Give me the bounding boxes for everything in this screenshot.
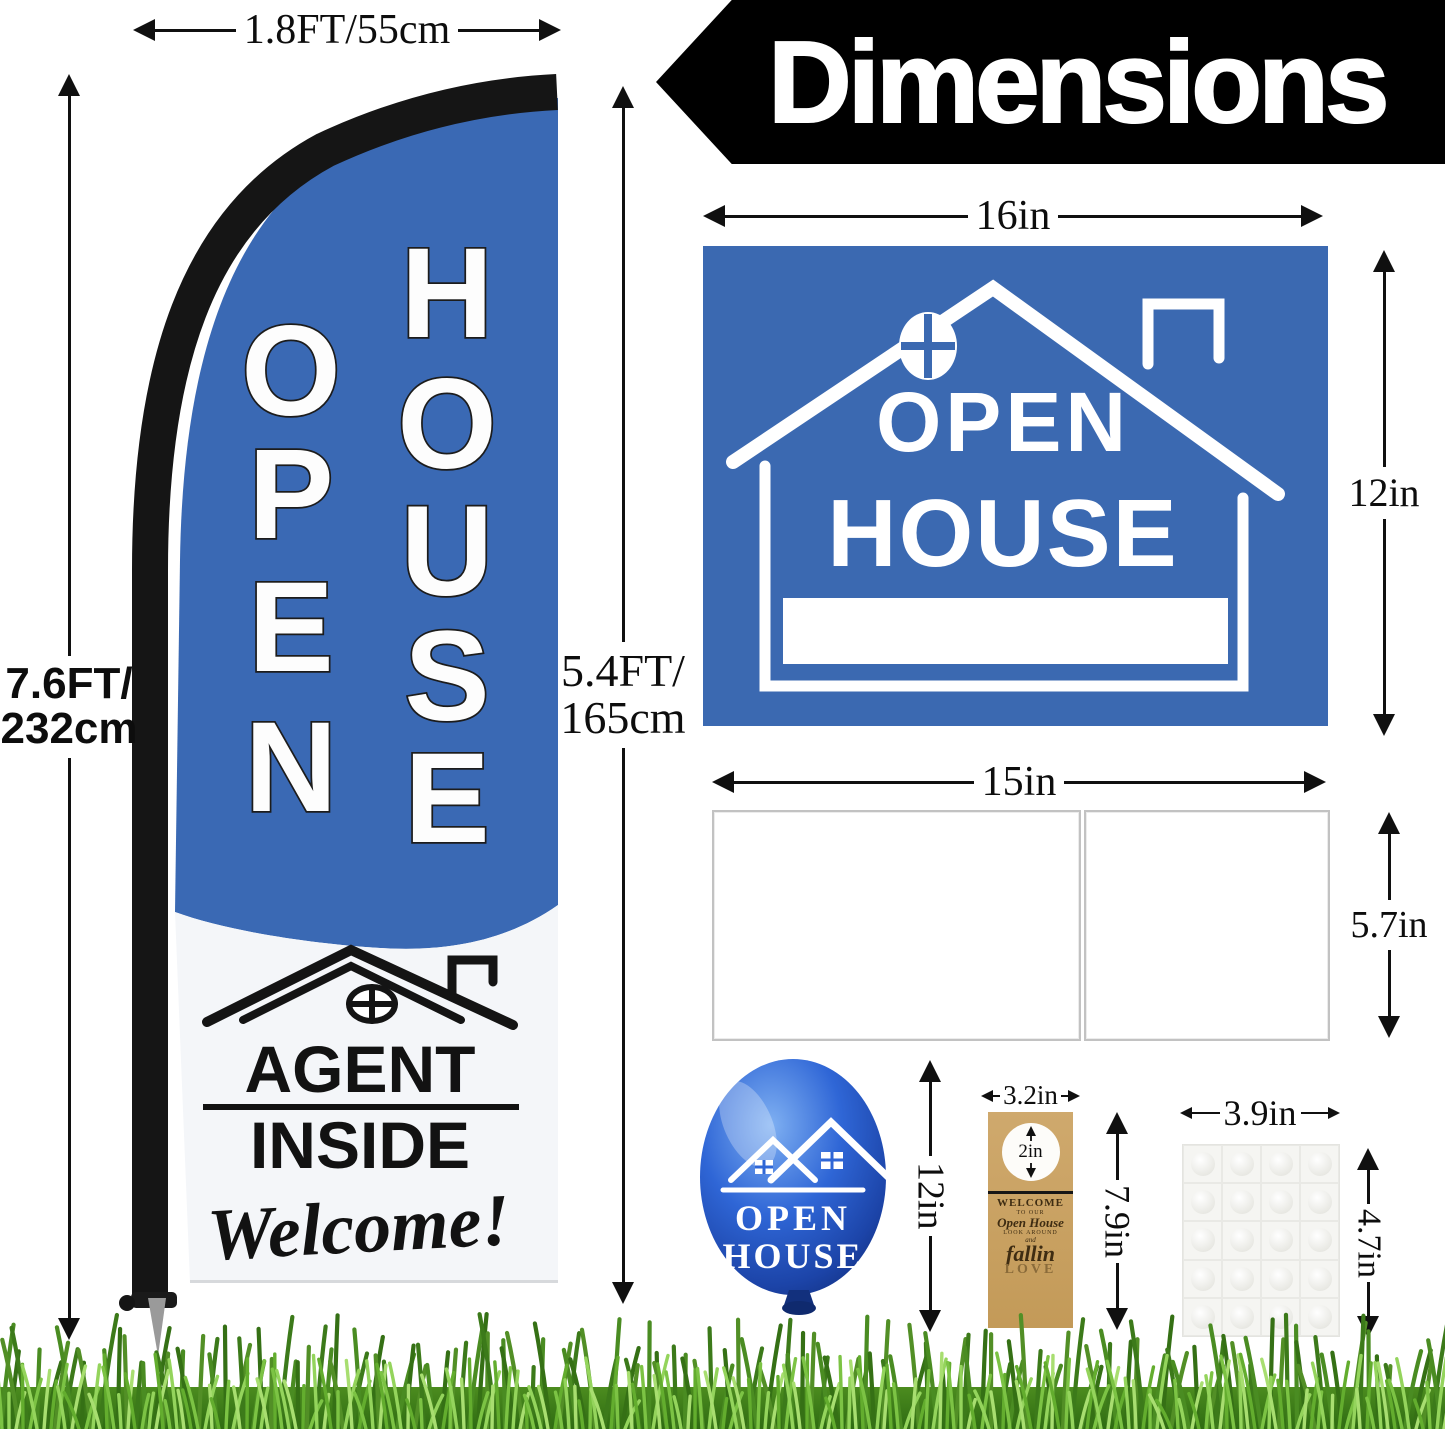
flag-width-label: 1.8FT/55cm xyxy=(236,9,459,52)
glue-dot xyxy=(1269,1228,1293,1252)
glue-dot-cell xyxy=(1261,1221,1300,1259)
stake-height-arrow: 5.7in xyxy=(1344,812,1434,1038)
glue-dot-cell xyxy=(1183,1221,1222,1259)
glue-dot xyxy=(1230,1228,1254,1252)
hanger-divider xyxy=(988,1191,1073,1194)
glue-dot xyxy=(1191,1190,1215,1214)
glue-dot xyxy=(1308,1228,1332,1252)
feather-flag: O P E N H O U S E AGENT INSIDE Welcome! xyxy=(115,70,570,1360)
hanger-hole: 2in xyxy=(1002,1123,1060,1181)
h-stake-frame-left xyxy=(712,810,1081,1041)
sign-width-arrow: 16in xyxy=(703,196,1323,236)
flag-letter: U xyxy=(401,480,493,623)
stake-width-arrow: 15in xyxy=(712,762,1326,802)
stake-height-label: 5.7in xyxy=(1350,900,1427,951)
arrowhead-up xyxy=(612,86,634,108)
flag-letter: P xyxy=(248,423,333,566)
balloon-open-text: OPEN xyxy=(735,1198,851,1238)
balloon-height-label: 12in xyxy=(911,1156,950,1236)
glue-dot-cell xyxy=(1261,1145,1300,1183)
arrowhead-right xyxy=(539,19,561,41)
glue-dot-cell xyxy=(1222,1145,1261,1183)
sign-blank-strip xyxy=(783,598,1228,664)
glue-dot-cell xyxy=(1222,1183,1261,1221)
flag-total-height-label: 7.6FT/ 232cm xyxy=(1,656,138,758)
hanger-width-label: 3.2in xyxy=(1000,1082,1061,1110)
hanger-width-arrow: 3.2in xyxy=(981,1082,1080,1110)
glue-dot xyxy=(1230,1190,1254,1214)
flag-letter: E xyxy=(404,727,489,870)
grass xyxy=(0,1269,1445,1429)
sign-height-label: 12in xyxy=(1348,467,1419,520)
open-house-sign: OPEN HOUSE xyxy=(703,246,1328,726)
hanger-text: WELCOME TO OUR Open House LOOK AROUND an… xyxy=(988,1198,1073,1277)
flag-welcome-text: Welcome! xyxy=(205,1179,512,1277)
sign-open-text: OPEN xyxy=(876,375,1130,469)
flag-inside-text: INSIDE xyxy=(250,1108,470,1182)
flag-letter: O xyxy=(241,300,341,443)
flag-letter: N xyxy=(245,696,337,839)
flag-height-label: 5.4FT/ 165cm xyxy=(560,642,685,748)
glue-dot xyxy=(1308,1152,1332,1176)
hanger-hole-label: 2in xyxy=(1018,1141,1042,1162)
product-dimensions-image: Dimensions O P E N H O U S E xyxy=(0,0,1445,1429)
arrowhead-up xyxy=(58,74,80,96)
glue-dot-cell xyxy=(1300,1145,1339,1183)
glue-dot-cell xyxy=(1183,1145,1222,1183)
flag-agent-text: AGENT xyxy=(245,1032,476,1106)
glue-dot xyxy=(1269,1152,1293,1176)
glue-dot-cell xyxy=(1222,1221,1261,1259)
flag-width-arrow: 1.8FT/55cm xyxy=(133,10,561,50)
flag-letter: H xyxy=(401,222,493,365)
page-title: Dimensions xyxy=(768,15,1385,149)
arrowhead-left xyxy=(133,19,155,41)
flag-height-arrow: 5.4FT/ 165cm xyxy=(553,86,693,1304)
sign-height-arrow: 12in xyxy=(1338,250,1430,736)
glue-dot-cell xyxy=(1300,1183,1339,1221)
glue-dot xyxy=(1191,1228,1215,1252)
flag-letter: E xyxy=(248,556,333,699)
flag-total-height-arrow: 7.6FT/ 232cm xyxy=(3,74,135,1340)
glue-dot xyxy=(1230,1152,1254,1176)
hanger-height-label: 7.9in xyxy=(1099,1180,1136,1263)
dots-width-arrow: 3.9in xyxy=(1180,1096,1340,1130)
glue-dot-cell xyxy=(1183,1183,1222,1221)
h-stake-frame-right xyxy=(1084,810,1330,1041)
glue-dot xyxy=(1269,1190,1293,1214)
glue-dot-cell xyxy=(1300,1221,1339,1259)
stake-width-label: 15in xyxy=(974,761,1065,804)
glue-dot-cell xyxy=(1261,1183,1300,1221)
sign-width-label: 16in xyxy=(968,195,1059,238)
glue-dot xyxy=(1191,1152,1215,1176)
glue-dot xyxy=(1308,1190,1332,1214)
sign-house-text: HOUSE xyxy=(827,480,1178,587)
dimensions-title-banner: Dimensions xyxy=(656,0,1445,164)
flag-letter: O xyxy=(397,353,497,496)
dots-width-label: 3.9in xyxy=(1220,1095,1301,1132)
